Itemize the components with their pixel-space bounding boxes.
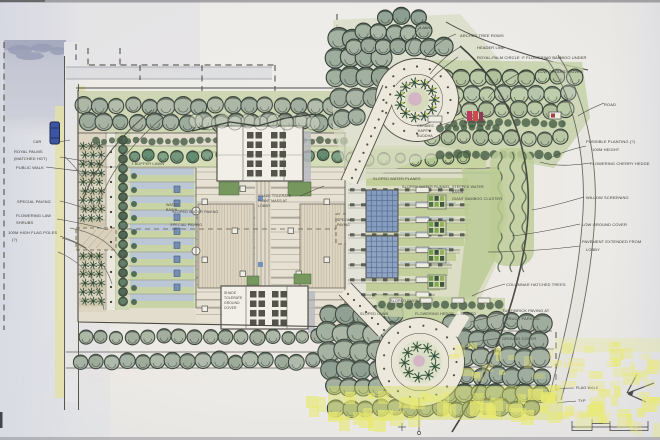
svg-text:(?): (?) [12,237,18,242]
svg-text:SPECIAL PAVING: SPECIAL PAVING [17,199,51,204]
svg-text:ROAD: ROAD [604,102,616,107]
svg-text:POSSIBLE PLANTING (?): POSSIBLE PLANTING (?) [586,139,636,144]
svg-text:WILLOW SCREENING: WILLOW SCREENING [586,195,629,200]
svg-text:CAR: CAR [33,140,41,144]
svg-text:PAVEMENT EXTENDED FROM: PAVEMENT EXTENDED FROM [582,239,641,244]
svg-text:LOW GROUND COVER: LOW GROUND COVER [582,222,627,227]
svg-text:PUBLIC WALK: PUBLIC WALK [16,165,44,170]
svg-text:100M HEIGHT: 100M HEIGHT [592,147,620,152]
svg-text:TYP: TYP [578,399,586,403]
svg-text:LAWN: LAWN [420,25,432,30]
svg-text:SHRUBS: SHRUBS [16,220,34,225]
svg-text:LOW GROUND COVER: LOW GROUND COVER [538,69,583,74]
svg-text:ROYAL-PALM CIRCLE ·F FLOWERING: ROYAL-PALM CIRCLE ·F FLOWERING BAMBOO UN… [477,55,587,60]
svg-text:HEADER LINE: HEADER LINE [477,45,505,50]
svg-text:LOBBY: LOBBY [586,247,600,252]
svg-text:(MATCHED HGT): (MATCHED HGT) [14,156,48,161]
svg-text:FLOWERING CHERRY HEDGE: FLOWERING CHERRY HEDGE [590,161,650,166]
svg-text:FLOWERING LAW: FLOWERING LAW [16,213,51,218]
svg-text:ROYAL PALMS: ROYAL PALMS [14,149,43,154]
svg-text:ARCHED TREE ROWS: ARCHED TREE ROWS [460,33,504,38]
svg-text:100M HIGH FLAG POLES: 100M HIGH FLAG POLES [8,230,57,235]
